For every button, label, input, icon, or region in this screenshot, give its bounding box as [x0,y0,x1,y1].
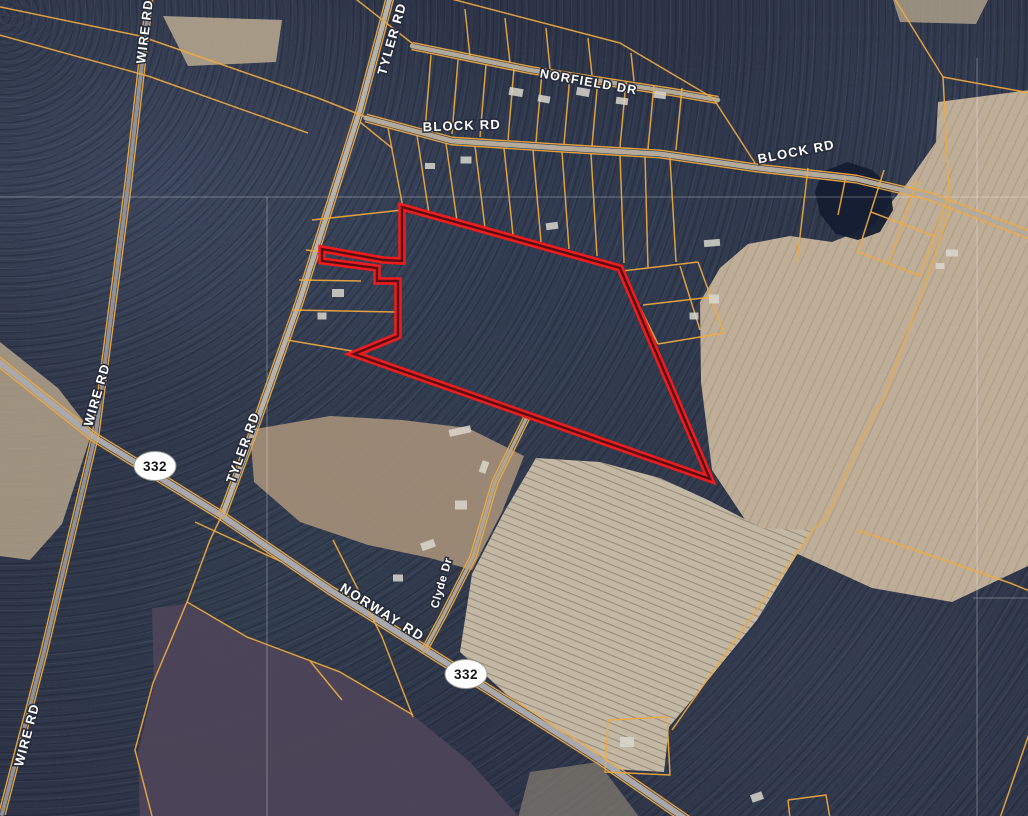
road-label: WIRE RD [11,702,42,768]
building [461,157,472,164]
parcel-line [648,85,654,149]
building [455,501,467,510]
field-mid-clearing [250,416,524,570]
road-label: BLOCK RD [422,117,501,135]
building [546,222,559,231]
building [704,239,721,247]
parcel-line [505,18,510,63]
field-top-left-field [163,16,282,66]
parcel-line [508,68,514,140]
route-shield-number: 332 [454,667,478,682]
building [318,313,327,320]
parcel-line [533,150,541,242]
building [946,250,958,257]
parcel-line [591,154,597,256]
parcel-line [287,340,352,351]
parcel-line [588,38,592,75]
parcel-line [446,143,457,221]
building [750,791,764,803]
parcel-line [622,262,698,271]
parcel-line [1000,731,1028,816]
parcel-line [417,135,429,214]
parcel-line [645,157,648,268]
parcel-line [465,9,470,57]
building [709,295,719,304]
building [425,163,435,169]
parcel-line [536,72,542,142]
road-norfield-dr-edge [413,43,719,97]
building [332,289,344,297]
route-shield-number: 332 [143,459,167,474]
building [393,575,403,582]
parcel-line [504,148,513,235]
building [690,313,699,320]
building [616,97,629,106]
map-overlay-svg: TYLER RDWIRE RDNORFIELD DRBLOCK RDBLOCK … [0,0,1028,816]
road-label: BLOCK RD [756,137,836,167]
parcel-line [293,310,396,312]
parcel-line [562,152,569,249]
parcel-line [475,146,485,228]
parcel-line [631,53,634,81]
parcel-line [546,28,550,69]
building [508,87,523,97]
satellite-map-view[interactable]: TYLER RDWIRE RDNORFIELD DRBLOCK RDBLOCK … [0,0,1028,816]
parcel-line [788,795,830,816]
road-label: WIRE RD [81,362,113,428]
parcel-line [388,128,403,208]
parcel-line [670,158,676,262]
parcel-line [299,280,361,281]
building [936,263,945,269]
road-label: NORWAY RD [337,580,427,644]
road-label: WIRE RD [133,0,156,64]
parcel-line [620,155,624,263]
building [620,737,634,747]
